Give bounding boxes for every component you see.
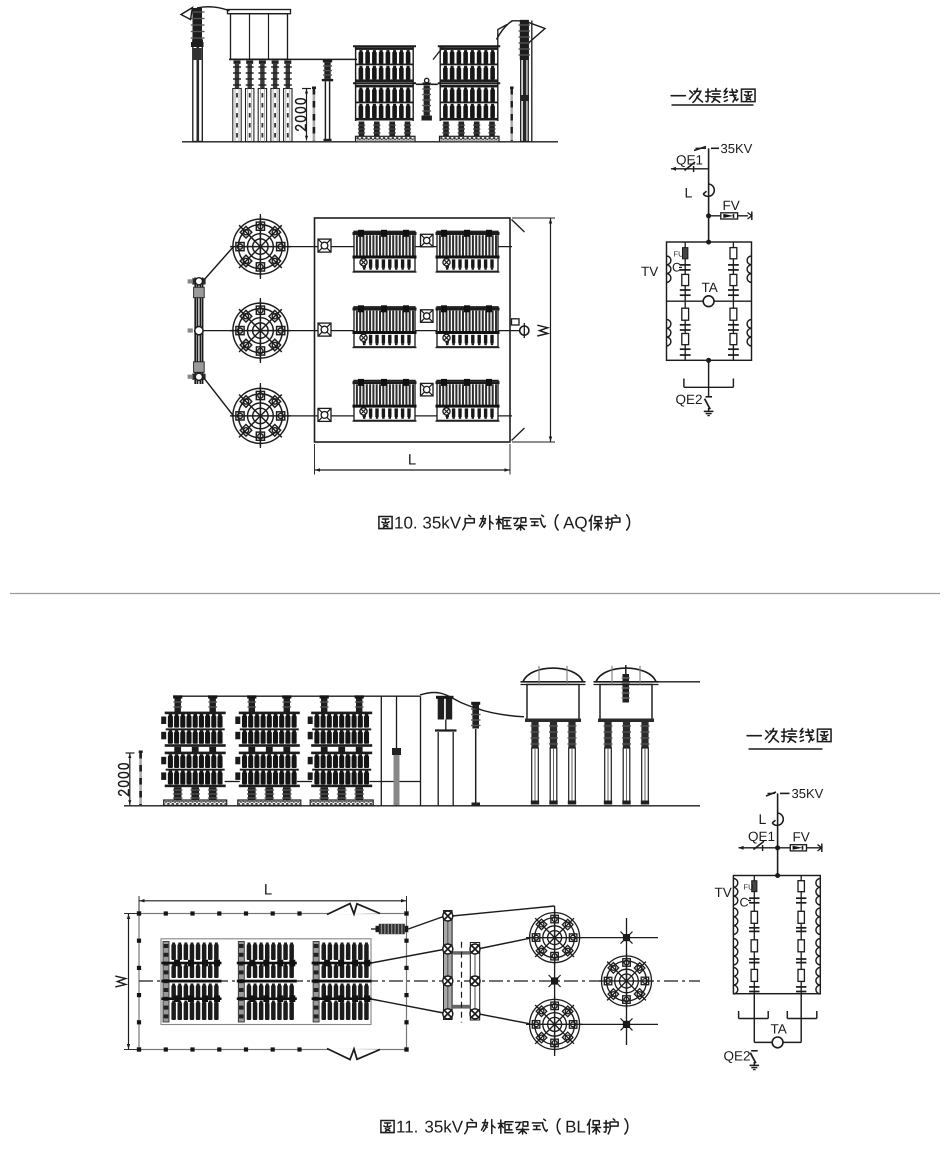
svg-text:35kV: 35kV — [424, 1118, 463, 1137]
svg-text:35KV: 35KV — [721, 141, 753, 156]
svg-text:L: L — [759, 811, 767, 827]
svg-text:QE2: QE2 — [724, 1049, 751, 1064]
svg-text:TV: TV — [641, 264, 658, 279]
svg-text:QE2: QE2 — [676, 392, 703, 407]
svg-text:L: L — [408, 452, 416, 469]
svg-text:L: L — [264, 882, 272, 899]
svg-text:FV: FV — [793, 830, 810, 845]
svg-text:AQ: AQ — [563, 514, 588, 533]
svg-text:35KV: 35KV — [792, 786, 824, 801]
svg-text:35kV: 35kV — [422, 514, 461, 533]
svg-text:TA: TA — [771, 1022, 787, 1037]
svg-text:11.: 11. — [396, 1118, 418, 1137]
svg-text:TV: TV — [715, 885, 732, 900]
svg-text:FU: FU — [744, 883, 754, 892]
svg-text:TA: TA — [702, 280, 718, 295]
svg-text:QE1: QE1 — [748, 829, 775, 844]
svg-text:FV: FV — [723, 198, 740, 213]
svg-text:10.: 10. — [394, 514, 418, 533]
svg-text:L: L — [685, 185, 693, 201]
svg-text:FU: FU — [674, 250, 684, 259]
svg-text:QE1: QE1 — [676, 153, 703, 168]
svg-text:BL: BL — [565, 1118, 586, 1137]
svg-text:C: C — [740, 896, 749, 910]
